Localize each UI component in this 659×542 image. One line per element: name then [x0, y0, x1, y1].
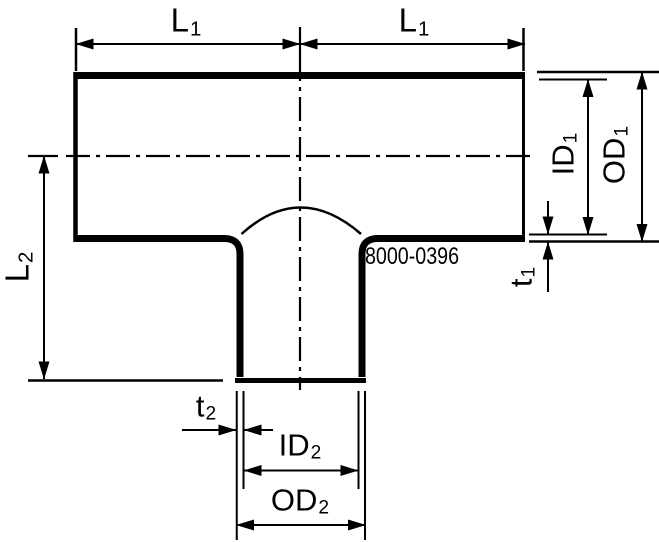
part-number: 8000-0396 — [365, 245, 459, 269]
dim-label-l2-sub: 2 — [14, 252, 37, 263]
dim-label-l1-left: L1 — [171, 4, 202, 37]
dim-label-t2-main: t — [196, 389, 205, 424]
dim-label-od2-sub: 2 — [318, 498, 329, 519]
dim-label-od1-main: OD — [597, 138, 632, 185]
tee-drawing-linework — [0, 0, 659, 542]
dim-label-t2-sub: 2 — [205, 404, 216, 425]
dim-label-l2: L2 — [1, 252, 34, 283]
dim-label-t2: t2 — [196, 391, 216, 422]
dimension-lines — [44, 44, 642, 525]
dim-label-id1: ID1 — [548, 133, 579, 176]
dim-label-l1-left-sub: 1 — [190, 17, 201, 40]
dim-label-od1-sub: 1 — [612, 126, 633, 137]
dim-label-id2-main: ID — [279, 428, 310, 463]
dim-label-t1-sub: 1 — [519, 267, 540, 278]
dim-label-od2: OD2 — [271, 485, 329, 516]
saddle-weld-arc — [242, 208, 362, 235]
dim-label-l1-right-sub: 1 — [418, 17, 429, 40]
centerlines — [28, 27, 530, 390]
dim-label-t1: t1 — [506, 267, 537, 287]
dim-label-id2-sub: 2 — [311, 443, 322, 464]
dim-label-id2: ID2 — [279, 430, 322, 461]
dim-label-l2-main: L — [0, 264, 36, 282]
dim-label-od2-main: OD — [271, 483, 318, 518]
dim-label-id1-sub: 1 — [561, 133, 582, 144]
dim-label-l1-right: L1 — [399, 4, 430, 37]
dim-label-l1-right-main: L — [399, 2, 417, 39]
dim-label-od1: OD1 — [599, 126, 630, 184]
dim-label-l1-left-main: L — [171, 2, 189, 39]
tee-fitting-technical-drawing: L1 L1 L2 ID1 OD1 t1 t2 ID2 OD2 8000-0396 — [0, 0, 659, 542]
dim-label-id1-main: ID — [546, 144, 581, 175]
dim-label-t1-main: t — [504, 279, 539, 288]
extension-lines — [28, 28, 659, 540]
run-bottom-left-and-branch-left-wall — [76, 239, 240, 378]
